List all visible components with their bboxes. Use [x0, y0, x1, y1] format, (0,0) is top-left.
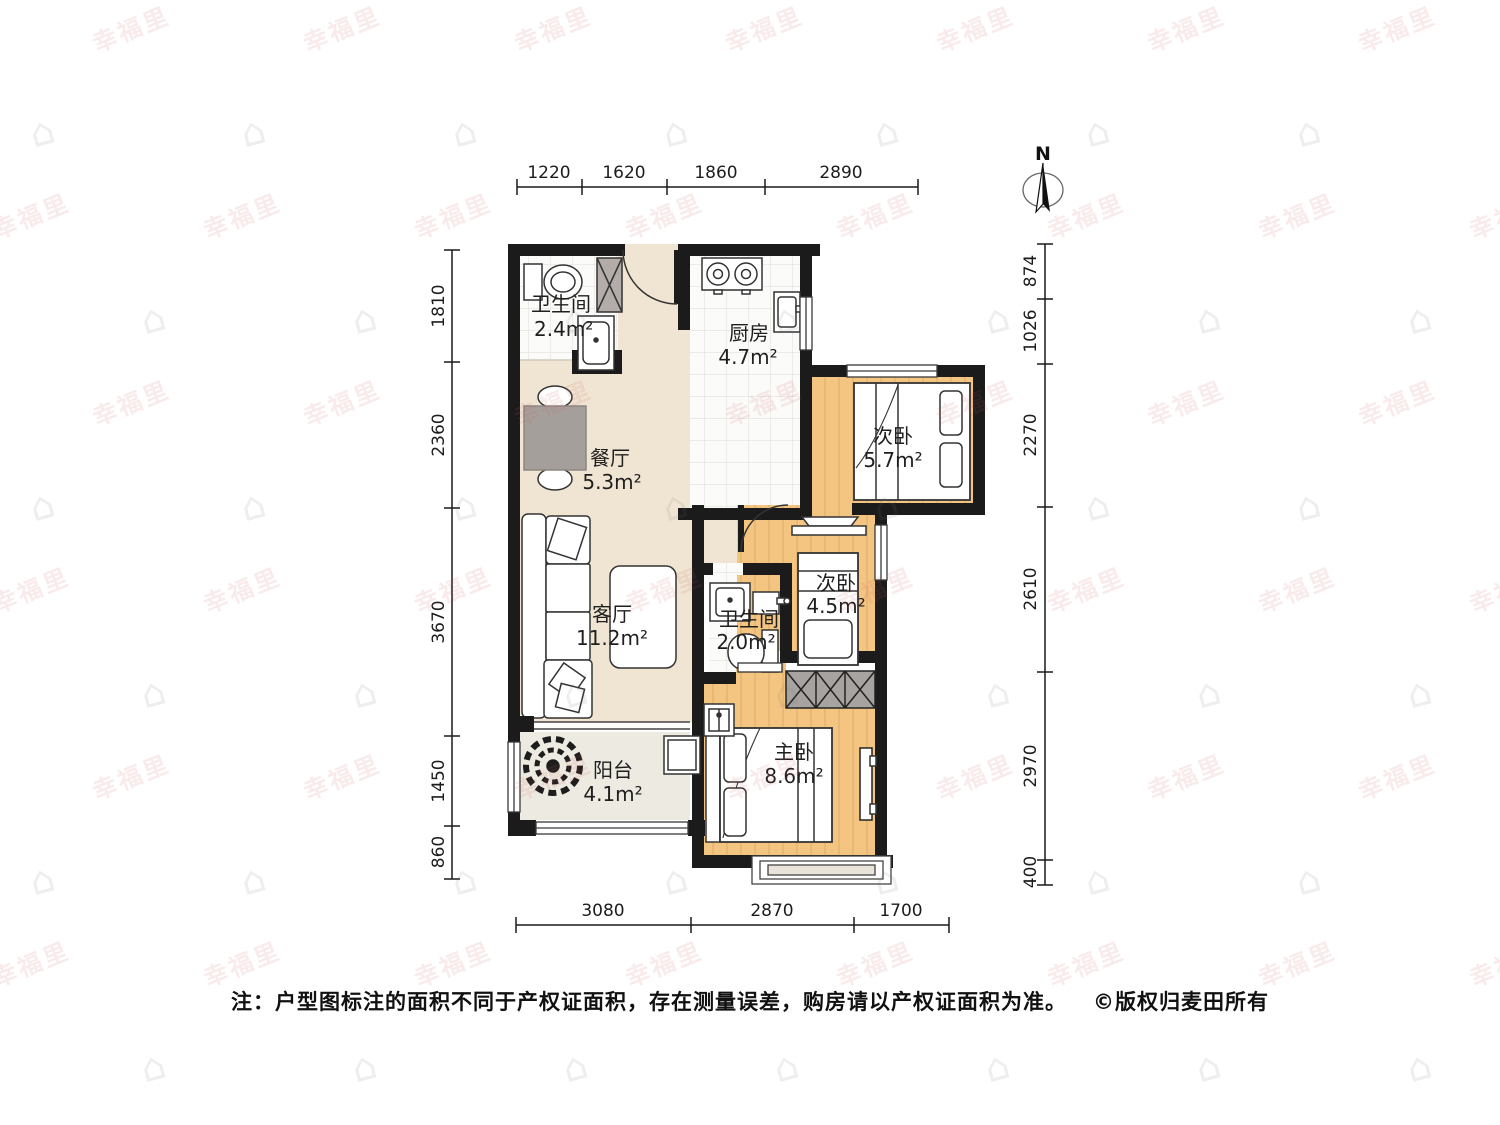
- dim-label: 2870: [750, 901, 793, 921]
- footer-note-bar: 注：户型图标注的面积不同于产权证面积，存在测量误差，购房请以产权证面积为准。©版…: [0, 986, 1500, 1016]
- master-door-leaf: [738, 663, 782, 672]
- dim-label: 3080: [581, 901, 624, 921]
- kitchen-window: [800, 297, 812, 350]
- dim-label: 2610: [1021, 567, 1041, 610]
- dim-label: 860: [429, 836, 449, 868]
- bedroom2-door-opening: [812, 503, 852, 515]
- room-name: 次卧: [873, 424, 913, 448]
- compass-label: N: [1035, 143, 1051, 165]
- dim-label: 3670: [429, 600, 449, 643]
- room-label-bathroom-2: 卫生间 2.0m²: [716, 607, 779, 654]
- dim-label: 2970: [1021, 744, 1041, 787]
- room-area: 8.6m²: [764, 764, 823, 788]
- room-area: 4.7m²: [718, 345, 777, 369]
- bathroom1-cabinet: [597, 258, 622, 312]
- dim-label: 1026: [1021, 309, 1041, 352]
- dim-label: 1620: [602, 163, 645, 183]
- room-name: 阳台: [593, 758, 633, 782]
- room-area: 2.4m²: [534, 317, 593, 341]
- floorplan-page: 卫生间 2.4m² 厨房 4.7m² 次卧 5.7m² 餐厅 5.3m² 客厅 …: [0, 0, 1500, 1125]
- dim-label: 2270: [1021, 413, 1041, 456]
- dim-label: 2890: [819, 163, 862, 183]
- compass-icon: N: [1023, 143, 1063, 212]
- room-label-bathroom-1: 卫生间 2.4m²: [531, 292, 593, 341]
- room-area: 5.7m²: [863, 448, 922, 472]
- room-name: 次卧: [816, 571, 856, 595]
- entry-doorway-floor: [625, 244, 678, 256]
- room-name: 餐厅: [590, 446, 630, 470]
- wardrobe: [786, 671, 875, 708]
- room-area: 4.1m²: [583, 782, 642, 806]
- dim-label: 2360: [429, 413, 449, 456]
- room-name: 主卧: [774, 740, 814, 764]
- room-area: 2.0m²: [716, 630, 775, 654]
- stove: [702, 258, 762, 294]
- dim-label: 1450: [429, 759, 449, 802]
- room-name: 客厅: [592, 602, 632, 626]
- balcony-side-window: [508, 742, 520, 812]
- floorplan-canvas: 卫生间 2.4m² 厨房 4.7m² 次卧 5.7m² 餐厅 5.3m² 客厅 …: [0, 0, 1500, 1125]
- balcony-cabinet: [664, 736, 700, 774]
- dim-label: 1810: [429, 284, 449, 327]
- entry-door-leaf: [674, 250, 679, 304]
- bedroom3-window: [875, 525, 887, 580]
- room-name: 卫生间: [719, 607, 779, 631]
- disclaimer-note: 注：户型图标注的面积不同于产权证面积，存在测量误差，购房请以产权证面积为准。: [231, 990, 1067, 1014]
- ac-unit-icon: [704, 704, 734, 736]
- dim-label: 400: [1021, 856, 1041, 888]
- dim-label: 1860: [694, 163, 737, 183]
- room-area: 5.3m²: [582, 470, 641, 494]
- sofa: [522, 514, 592, 718]
- balcony-bottom-window: [536, 822, 688, 834]
- dim-label: 874: [1021, 255, 1041, 287]
- room-area: 4.5m²: [806, 594, 865, 618]
- room-area: 11.2m²: [576, 626, 648, 650]
- dim-label: 1700: [879, 901, 922, 921]
- room-name: 卫生间: [531, 292, 591, 316]
- dim-label: 1220: [527, 163, 570, 183]
- bay-window: [752, 856, 891, 884]
- room-name: 厨房: [729, 321, 769, 345]
- bedroom2-window: [847, 365, 937, 377]
- copyright-text: ©版权归麦田所有: [1093, 990, 1269, 1014]
- bathroom2-door-opening: [713, 563, 743, 575]
- corridor-floor: [704, 520, 737, 563]
